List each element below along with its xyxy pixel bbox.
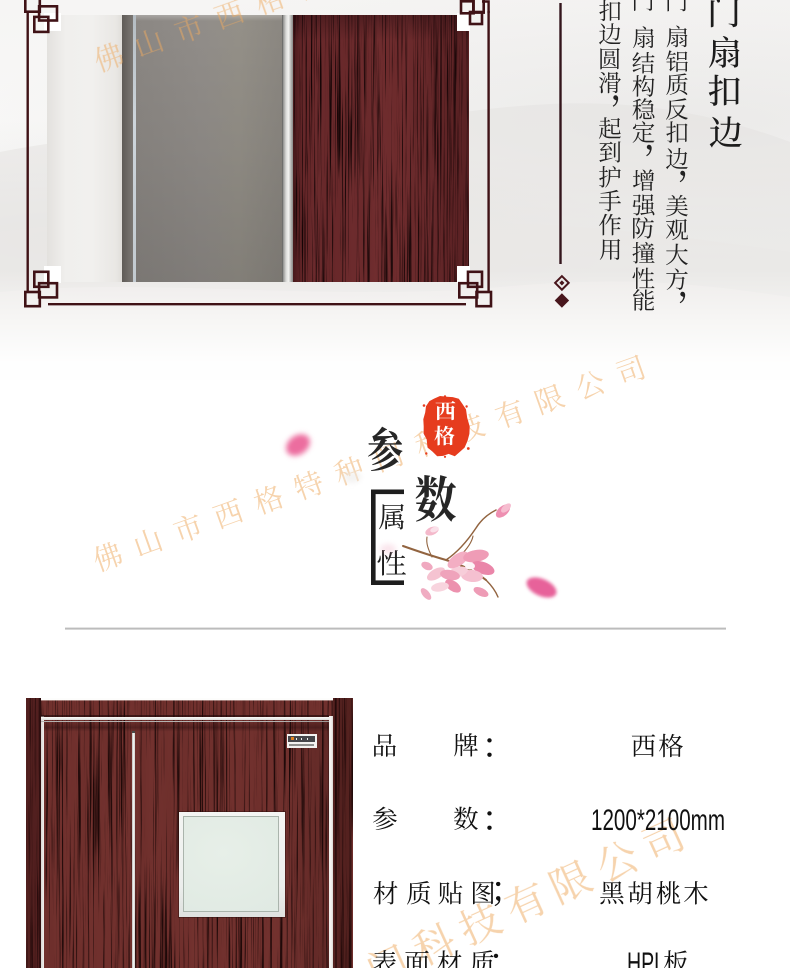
svg-text:HPL: HPL [627, 947, 665, 968]
svg-text:1200*2100mm: 1200*2100mm [591, 804, 725, 837]
